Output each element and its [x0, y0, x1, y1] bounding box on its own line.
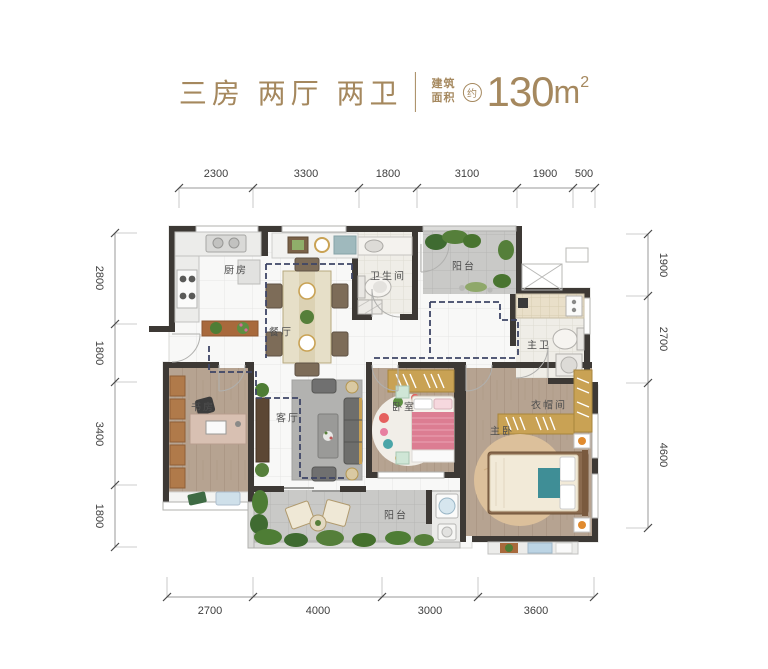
bay-plant	[505, 544, 513, 552]
area-prefix-line1: 建筑	[431, 78, 455, 92]
master-headboard	[582, 450, 588, 516]
kitchen-window	[196, 226, 258, 232]
bay-pillow	[556, 543, 572, 553]
teal-blanket	[538, 468, 560, 498]
room-label-dining: 餐厅	[269, 324, 293, 339]
dim-right-1: 2700	[657, 327, 669, 351]
table-plant	[300, 310, 314, 324]
chair	[332, 284, 348, 308]
wall-master-left	[460, 362, 466, 542]
outside-platform	[522, 248, 588, 290]
closet-wardrobe-v	[574, 370, 592, 432]
side-table-top	[346, 381, 358, 393]
chair	[266, 284, 282, 308]
burner	[189, 276, 196, 283]
master-toilet-tank	[577, 328, 584, 350]
table-flowers	[323, 431, 333, 441]
place-setting	[299, 335, 315, 351]
wall-left-lower	[163, 362, 169, 508]
bath-basin	[365, 240, 383, 252]
wall-bedroom-right	[454, 362, 460, 478]
bay-cushion-blue	[216, 492, 240, 505]
toilet-seat	[373, 281, 387, 293]
place-setting	[299, 283, 315, 299]
living-plant-top	[255, 383, 269, 397]
dim-top-0: 2300	[204, 168, 228, 180]
master-window-2	[592, 474, 598, 518]
page-title: 三房 两厅 两卫 建筑 面积 约 130 m 2	[179, 68, 589, 116]
wall-entry-stub	[149, 326, 175, 332]
sink-bowl-right	[229, 238, 239, 248]
room-label-bathroom: 卫生间	[370, 268, 406, 283]
bay-cushion	[528, 543, 552, 553]
area-unit: m	[554, 74, 581, 111]
laptop	[206, 421, 226, 434]
wall-bathroom-right	[412, 226, 418, 320]
master-toilet-bowl	[553, 329, 577, 349]
approx-badge: 约	[462, 83, 481, 102]
dim-top-5: 500	[575, 168, 593, 180]
chair	[332, 332, 348, 356]
master-bath-window	[584, 298, 590, 334]
floor-plan-page: 三房 两厅 两卫 建筑 面积 约 130 m 2 厨房 餐厅 卫生间 阳台 主卫…	[0, 0, 768, 669]
wall-bathroom-bottom-b	[400, 314, 412, 320]
dim-top-4: 1900	[533, 168, 557, 180]
title-divider	[414, 72, 415, 112]
dim-bottom-1: 4000	[306, 605, 330, 617]
vanity-cabinet	[518, 298, 528, 308]
room-label-master-bedroom: 主卧	[490, 423, 514, 438]
area-prefix-line2: 面积	[431, 92, 455, 106]
burner	[189, 293, 196, 300]
dim-right-2: 4600	[657, 443, 669, 467]
burner	[180, 276, 187, 283]
master-window-1	[592, 414, 598, 458]
room-label-living: 客厅	[276, 410, 300, 425]
area-exponent: 2	[580, 74, 589, 92]
wall-study-top-a	[163, 362, 219, 368]
flower-dot	[239, 323, 242, 326]
dim-bottom-0: 2700	[198, 605, 222, 617]
bookshelf	[170, 376, 185, 488]
area-number: 130	[486, 68, 553, 116]
dim-left-3: 1800	[93, 504, 105, 528]
wall-balconytop-right	[516, 226, 522, 294]
room-label-closet: 衣帽间	[531, 397, 567, 412]
dim-top-3: 3100	[455, 168, 479, 180]
wall-bathroom-bottom-a	[352, 314, 372, 320]
master-pillow	[560, 485, 575, 509]
bed-pillow	[434, 399, 452, 409]
console-plant-1	[210, 322, 222, 334]
wall-study-right	[248, 362, 254, 502]
console-plant-2	[237, 322, 249, 334]
chair	[295, 363, 319, 376]
dim-left-1: 1800	[93, 341, 105, 365]
living-plant-bottom	[255, 463, 269, 477]
wall-bedroom-top-a	[366, 362, 372, 368]
dim-bottom-3: 3600	[524, 605, 548, 617]
burner	[180, 293, 187, 300]
room-label-bedroom: 卧室	[392, 399, 416, 414]
sofa-trim	[359, 398, 362, 464]
armchair-top	[312, 379, 336, 393]
dim-left-2: 3400	[93, 422, 105, 446]
bed-pillow	[414, 399, 432, 409]
wall-laundry-divider	[426, 490, 432, 524]
room-label-balcony-top: 阳台	[452, 258, 476, 273]
room-label-master-bath: 主卫	[527, 337, 551, 352]
vanity-basin-unit	[566, 296, 582, 316]
room-label-study: 书房	[191, 399, 215, 414]
decor-tray	[334, 236, 356, 254]
room-label-kitchen: 厨房	[224, 262, 248, 277]
dim-bottom-2: 3000	[418, 605, 442, 617]
dim-top-1: 3300	[294, 168, 318, 180]
toilet-tank	[358, 276, 365, 298]
dim-right-0: 1900	[657, 253, 669, 277]
dining-set	[266, 233, 358, 376]
wall-balcony-b	[340, 486, 366, 492]
tv-console	[256, 398, 269, 462]
area-prefix: 建筑 面积	[431, 78, 455, 106]
desk-lamp	[235, 421, 241, 427]
balcony-top-railing	[423, 226, 516, 231]
bedroom-window	[378, 472, 444, 478]
bed-throw	[412, 450, 454, 462]
wall-master-bottom	[472, 536, 598, 542]
wall-masterbath-top	[516, 288, 590, 294]
picture-art	[292, 240, 304, 250]
kitchen-sink	[206, 235, 246, 252]
sink-bowl-left	[213, 238, 223, 248]
wall-bedroom-left	[366, 362, 372, 478]
layout-type-title: 三房 两厅 两卫	[179, 72, 403, 112]
dim-top-2: 1800	[376, 168, 400, 180]
wall-left-upper	[169, 226, 175, 330]
master-pillow	[560, 457, 575, 481]
decor-plate	[315, 238, 329, 252]
kitchen-stove	[177, 270, 197, 308]
room-label-balcony-bottom: 阳台	[384, 507, 408, 522]
washer-drum	[439, 498, 455, 514]
dining-window	[282, 226, 346, 232]
dim-left-0: 2800	[93, 266, 105, 290]
side-table-bottom	[346, 468, 358, 480]
nightstand-mint-2	[396, 452, 409, 464]
flower-dot	[244, 328, 247, 331]
